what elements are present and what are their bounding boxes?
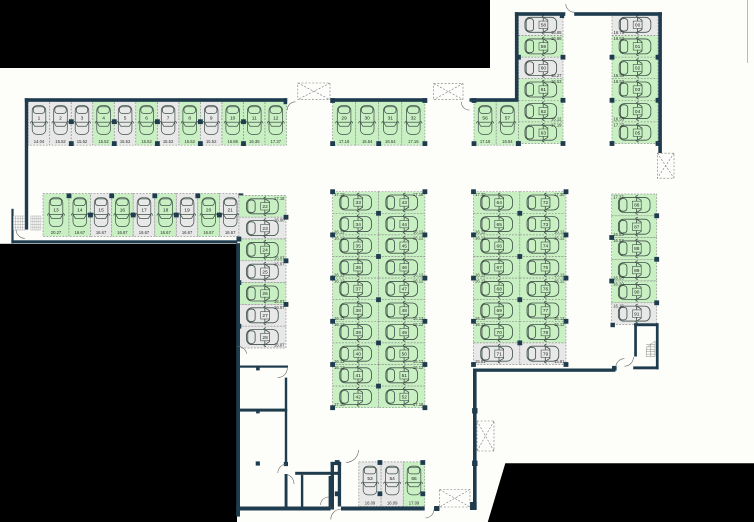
svg-text:70: 70 <box>497 330 503 336</box>
svg-text:44: 44 <box>402 222 408 228</box>
svg-text:41: 41 <box>356 373 362 379</box>
svg-text:16.12: 16.12 <box>334 359 345 364</box>
svg-text:16.12: 16.12 <box>554 279 565 284</box>
svg-text:79: 79 <box>543 351 549 357</box>
svg-text:16.09: 16.09 <box>365 500 376 505</box>
svg-text:75: 75 <box>543 265 549 271</box>
svg-text:16: 16 <box>120 208 126 214</box>
svg-text:25: 25 <box>262 269 268 275</box>
svg-text:9: 9 <box>210 115 213 121</box>
svg-text:16.07: 16.07 <box>274 299 285 304</box>
svg-text:16.54: 16.54 <box>362 139 373 144</box>
svg-text:3: 3 <box>81 115 84 121</box>
svg-text:17.16: 17.16 <box>408 139 419 144</box>
svg-text:16.07: 16.07 <box>274 343 285 348</box>
svg-text:56: 56 <box>482 115 488 121</box>
svg-text:12: 12 <box>273 115 279 121</box>
svg-text:51: 51 <box>402 373 408 379</box>
svg-text:36: 36 <box>356 265 362 271</box>
svg-text:16.12: 16.12 <box>334 229 345 234</box>
svg-text:16.67: 16.67 <box>203 230 214 235</box>
svg-text:73: 73 <box>543 222 549 228</box>
svg-text:16.12: 16.12 <box>475 279 486 284</box>
svg-text:16.86: 16.86 <box>227 139 238 144</box>
svg-text:16.67: 16.67 <box>96 230 107 235</box>
svg-text:47: 47 <box>402 287 408 293</box>
svg-text:17.18: 17.18 <box>413 192 424 197</box>
svg-text:65: 65 <box>497 222 503 228</box>
svg-text:16.12: 16.12 <box>413 322 424 327</box>
svg-text:16.66: 16.66 <box>551 36 562 41</box>
svg-text:21: 21 <box>228 208 234 214</box>
svg-text:16.09: 16.09 <box>387 500 398 505</box>
svg-text:16.07: 16.07 <box>274 261 285 266</box>
svg-text:16.67: 16.67 <box>225 230 236 235</box>
svg-text:17.37: 17.37 <box>614 122 625 127</box>
svg-text:16.12: 16.12 <box>334 316 345 321</box>
svg-text:19: 19 <box>184 208 190 214</box>
svg-text:50: 50 <box>402 351 408 357</box>
svg-text:66: 66 <box>497 243 503 249</box>
svg-text:90: 90 <box>634 290 640 296</box>
svg-text:87: 87 <box>634 224 640 230</box>
svg-text:10: 10 <box>230 115 236 121</box>
svg-text:16.12: 16.12 <box>413 273 424 278</box>
svg-text:63: 63 <box>541 130 547 136</box>
svg-text:86: 86 <box>634 203 640 209</box>
svg-text:05: 05 <box>635 130 641 136</box>
svg-text:49: 49 <box>402 330 408 336</box>
svg-text:32: 32 <box>411 115 417 121</box>
svg-text:23: 23 <box>262 226 268 232</box>
svg-text:61: 61 <box>541 87 547 93</box>
svg-text:17.30: 17.30 <box>554 192 565 197</box>
svg-text:15.52: 15.52 <box>206 139 217 144</box>
svg-text:15.52: 15.52 <box>163 139 174 144</box>
svg-text:14: 14 <box>77 208 83 214</box>
svg-text:16.67: 16.67 <box>75 230 86 235</box>
svg-text:16.12: 16.12 <box>334 365 345 370</box>
svg-text:01: 01 <box>635 44 641 50</box>
svg-text:16.67: 16.67 <box>182 230 193 235</box>
svg-text:54: 54 <box>390 476 396 482</box>
svg-text:16.12: 16.12 <box>551 116 562 121</box>
svg-text:16.75: 16.75 <box>614 30 625 35</box>
svg-text:17.37: 17.37 <box>271 139 282 144</box>
svg-text:69: 69 <box>497 308 503 314</box>
svg-text:34: 34 <box>356 222 362 228</box>
svg-text:17.18: 17.18 <box>334 192 345 197</box>
svg-text:28: 28 <box>262 335 268 341</box>
svg-text:16.53: 16.53 <box>614 79 625 84</box>
svg-text:16.67: 16.67 <box>160 230 171 235</box>
svg-text:16.65: 16.65 <box>551 30 562 35</box>
svg-text:16.15: 16.15 <box>613 303 624 308</box>
svg-text:15.52: 15.52 <box>77 139 88 144</box>
svg-text:16.12: 16.12 <box>475 235 486 240</box>
svg-text:17.18: 17.18 <box>334 402 345 407</box>
svg-text:17.09: 17.09 <box>409 500 420 505</box>
svg-text:16.07: 16.07 <box>274 305 285 310</box>
svg-text:16.00: 16.00 <box>274 218 285 223</box>
svg-text:17.16: 17.16 <box>339 139 350 144</box>
svg-text:16.27: 16.27 <box>551 73 562 78</box>
svg-text:16.53: 16.53 <box>614 116 625 121</box>
svg-text:26: 26 <box>262 291 268 297</box>
svg-text:58: 58 <box>541 23 547 29</box>
svg-text:18: 18 <box>163 208 169 214</box>
svg-text:02: 02 <box>635 66 641 72</box>
svg-text:43: 43 <box>402 200 408 206</box>
svg-text:04: 04 <box>635 109 641 115</box>
svg-text:16.53: 16.53 <box>613 276 624 281</box>
svg-text:89: 89 <box>634 268 640 274</box>
svg-text:16.12: 16.12 <box>413 229 424 234</box>
svg-text:16.12: 16.12 <box>475 322 486 327</box>
svg-text:27: 27 <box>262 313 268 319</box>
svg-text:30: 30 <box>365 115 371 121</box>
svg-text:16.12: 16.12 <box>413 279 424 284</box>
svg-text:35: 35 <box>356 243 362 249</box>
svg-text:17.18: 17.18 <box>413 402 424 407</box>
svg-text:39: 39 <box>356 330 362 336</box>
svg-text:6: 6 <box>145 115 148 121</box>
svg-text:77: 77 <box>543 308 549 314</box>
svg-text:17.30: 17.30 <box>475 192 486 197</box>
svg-text:16.12: 16.12 <box>554 273 565 278</box>
svg-text:15: 15 <box>98 208 104 214</box>
svg-text:16.12: 16.12 <box>554 229 565 234</box>
svg-text:1: 1 <box>38 115 41 121</box>
svg-text:16.12: 16.12 <box>475 273 486 278</box>
svg-text:17: 17 <box>141 208 147 214</box>
svg-text:15.52: 15.52 <box>184 139 195 144</box>
svg-text:71: 71 <box>497 351 503 357</box>
svg-text:15.52: 15.52 <box>120 139 131 144</box>
svg-text:16.53: 16.53 <box>551 79 562 84</box>
svg-text:67: 67 <box>497 265 503 271</box>
svg-text:16.12: 16.12 <box>413 235 424 240</box>
svg-text:16.12: 16.12 <box>554 235 565 240</box>
svg-text:38: 38 <box>356 308 362 314</box>
svg-text:16.67: 16.67 <box>139 230 150 235</box>
svg-text:15.52: 15.52 <box>55 139 66 144</box>
svg-text:62: 62 <box>541 109 547 115</box>
svg-text:16.12: 16.12 <box>334 279 345 284</box>
svg-text:16.12: 16.12 <box>413 316 424 321</box>
svg-text:16.20: 16.20 <box>613 282 624 287</box>
svg-text:16.54: 16.54 <box>385 139 396 144</box>
svg-text:15.81: 15.81 <box>554 359 565 364</box>
svg-text:31: 31 <box>388 115 394 121</box>
svg-text:45: 45 <box>402 243 408 249</box>
svg-text:72: 72 <box>543 200 549 206</box>
svg-text:60: 60 <box>541 66 547 72</box>
svg-text:5: 5 <box>124 115 127 121</box>
svg-text:74: 74 <box>543 243 549 249</box>
svg-text:15.52: 15.52 <box>141 139 152 144</box>
svg-text:76: 76 <box>543 287 549 293</box>
svg-text:16.07: 16.07 <box>274 255 285 260</box>
svg-text:14.04: 14.04 <box>34 139 45 144</box>
svg-text:16.54: 16.54 <box>502 139 513 144</box>
svg-text:53: 53 <box>367 476 373 482</box>
svg-text:88: 88 <box>634 246 640 252</box>
svg-text:16.53: 16.53 <box>614 73 625 78</box>
svg-text:8: 8 <box>188 115 191 121</box>
svg-text:15.81: 15.81 <box>475 359 486 364</box>
svg-text:16.53: 16.53 <box>614 36 625 41</box>
svg-text:16.35: 16.35 <box>249 139 260 144</box>
svg-text:16.67: 16.67 <box>117 230 128 235</box>
svg-text:4: 4 <box>102 115 105 121</box>
svg-text:16.12: 16.12 <box>413 365 424 370</box>
svg-text:16.12: 16.12 <box>334 235 345 240</box>
svg-text:48: 48 <box>402 308 408 314</box>
svg-text:55: 55 <box>411 476 417 482</box>
svg-text:52: 52 <box>402 395 408 401</box>
svg-text:15.52: 15.52 <box>98 139 109 144</box>
svg-text:64: 64 <box>497 200 503 206</box>
svg-text:17.19: 17.19 <box>551 122 562 127</box>
svg-text:7: 7 <box>167 115 170 121</box>
svg-text:16.12: 16.12 <box>554 316 565 321</box>
svg-text:40: 40 <box>356 351 362 357</box>
svg-text:16.53: 16.53 <box>613 238 624 243</box>
svg-text:17.16: 17.16 <box>480 139 491 144</box>
svg-text:33: 33 <box>356 200 362 206</box>
svg-text:91: 91 <box>634 311 640 317</box>
svg-text:22: 22 <box>262 204 268 210</box>
svg-text:16.12: 16.12 <box>334 273 345 278</box>
svg-text:29: 29 <box>341 115 347 121</box>
svg-text:20: 20 <box>206 208 212 214</box>
svg-text:59: 59 <box>541 44 547 50</box>
svg-text:78: 78 <box>543 330 549 336</box>
svg-text:13: 13 <box>53 208 59 214</box>
svg-text:03: 03 <box>635 87 641 93</box>
svg-text:17.37: 17.37 <box>613 195 624 200</box>
svg-text:24: 24 <box>262 248 268 254</box>
svg-text:16.12: 16.12 <box>554 322 565 327</box>
svg-text:16.53: 16.53 <box>613 232 624 237</box>
svg-text:42: 42 <box>356 395 362 401</box>
svg-text:17.18: 17.18 <box>274 196 285 201</box>
svg-text:37: 37 <box>356 287 362 293</box>
svg-text:11: 11 <box>252 115 257 121</box>
svg-text:00: 00 <box>635 23 641 29</box>
svg-text:46: 46 <box>402 265 408 271</box>
svg-text:57: 57 <box>505 115 511 121</box>
svg-text:2: 2 <box>59 115 62 121</box>
svg-text:16.12: 16.12 <box>475 229 486 234</box>
svg-text:20.27: 20.27 <box>51 230 62 235</box>
svg-text:16.12: 16.12 <box>413 359 424 364</box>
svg-text:68: 68 <box>497 287 503 293</box>
svg-text:16.12: 16.12 <box>475 316 486 321</box>
svg-text:16.12: 16.12 <box>334 322 345 327</box>
